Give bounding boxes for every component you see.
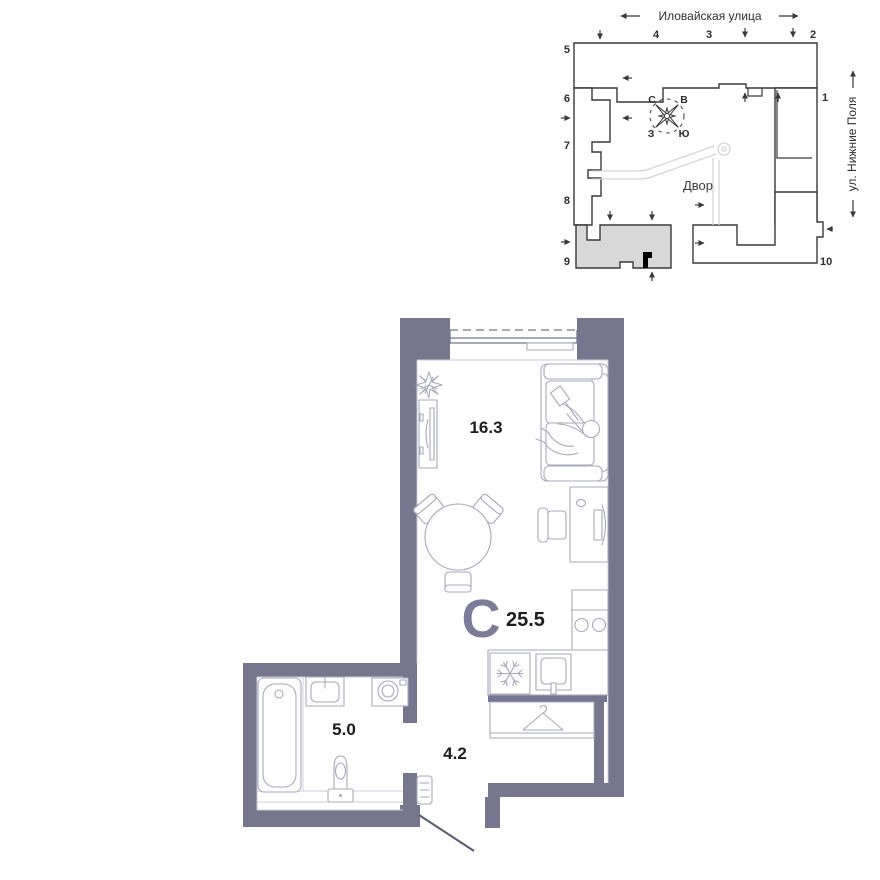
compass-south-label: Ю: [679, 128, 690, 140]
building-number-4: 4: [653, 29, 660, 41]
floorplan-page: Иловайская улица ул. Нижние Поля: [0, 0, 880, 880]
building-number-6: 6: [564, 93, 570, 105]
compass-east-label: В: [680, 94, 688, 106]
dining-table-icon: [413, 493, 505, 592]
building-2-inner-stub: [748, 88, 762, 96]
street-top-label: Иловайская улица: [658, 9, 761, 23]
building-complex-outline: [574, 43, 823, 268]
courtyard-label: Двор: [683, 178, 713, 193]
apartment-plan: 16.3 С 25.5 5.0 4.2: [243, 318, 624, 851]
radiator-icon: [417, 776, 432, 804]
entrance-door-swing: [419, 815, 474, 851]
tv-icon: [419, 400, 437, 468]
sofa-icon: [536, 364, 608, 481]
washing-machine-icon: [372, 678, 408, 706]
street-right-label: ул. Нижние Поля: [845, 97, 859, 192]
washbasin-icon: [306, 677, 344, 706]
kitchen-sink-icon: [536, 654, 571, 694]
floorplan-figure: Иловайская улица ул. Нижние Поля: [0, 0, 880, 880]
monitor-icon: [594, 510, 602, 540]
wardrobe-hanger-icon: [490, 702, 594, 738]
desk-icon: [538, 487, 608, 562]
total-area-label: 25.5: [506, 609, 545, 631]
building-number-1: 1: [822, 92, 828, 104]
living-room-area-label: 16.3: [469, 418, 502, 437]
street-top: Иловайская улица: [621, 9, 798, 23]
bathroom-area-label: 5.0: [332, 720, 356, 739]
building-number-9: 9: [564, 256, 570, 268]
plant-icon: [416, 372, 442, 398]
fridge-snowflake-icon: [490, 653, 530, 694]
building-number-2: 2: [810, 29, 816, 41]
office-chair-icon: [538, 508, 566, 542]
window-balcony: [450, 330, 577, 350]
burner-icon: [593, 619, 606, 632]
building-number-10: 10: [820, 256, 832, 268]
compass-rose-icon: С В З Ю: [648, 94, 690, 140]
building-number-5: 5: [564, 44, 570, 56]
building-number-3: 3: [706, 29, 712, 41]
building-left-column: [574, 88, 610, 225]
burner-icon: [575, 619, 588, 632]
mug-icon: [577, 500, 586, 507]
dining-table-top: [425, 504, 491, 570]
compass-north-label: С: [648, 94, 656, 106]
building-number-8: 8: [564, 195, 570, 207]
kitchen: [488, 590, 608, 695]
bathtub-icon: [258, 678, 301, 792]
building-number-7: 7: [564, 140, 570, 152]
street-right: ул. Нижние Поля: [845, 71, 859, 217]
building-9-selected: [576, 225, 671, 268]
toilet-icon: [328, 756, 353, 802]
hallway-area-label: 4.2: [443, 744, 467, 763]
apartment-type-letter: С: [462, 589, 501, 649]
site-plan: Иловайская улица ул. Нижние Поля: [561, 9, 859, 281]
compass-west-label: З: [648, 128, 655, 140]
balcony-door-leaf: [527, 343, 573, 350]
